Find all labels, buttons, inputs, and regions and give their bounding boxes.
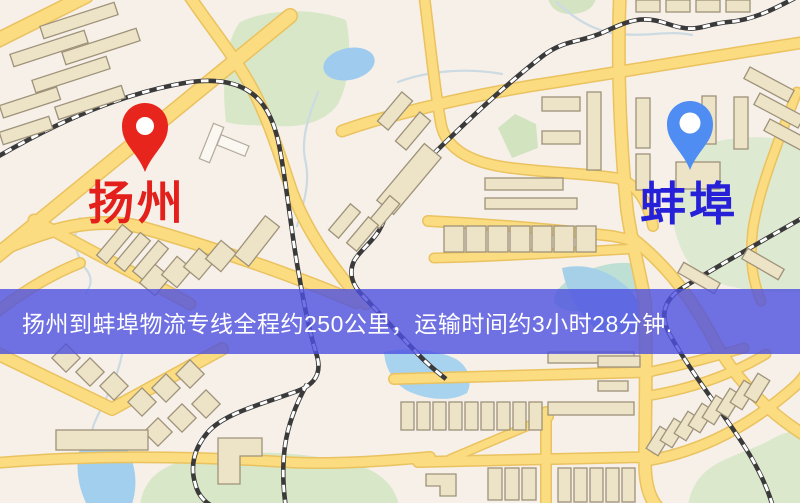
destination-city-label: 蚌埠: [640, 181, 738, 228]
map-view: 扬州 蚌埠 扬州到蚌埠物流专线全程约250公里，运输时间约3小时28分钟.: [0, 0, 800, 503]
map-background: [0, 0, 800, 503]
route-info-text: 扬州到蚌埠物流专线全程约250公里，运输时间约3小时28分钟.: [22, 305, 673, 339]
route-info-banner: 扬州到蚌埠物流专线全程约250公里，运输时间约3小时28分钟.: [0, 289, 800, 354]
origin-city-label: 扬州: [88, 180, 186, 227]
